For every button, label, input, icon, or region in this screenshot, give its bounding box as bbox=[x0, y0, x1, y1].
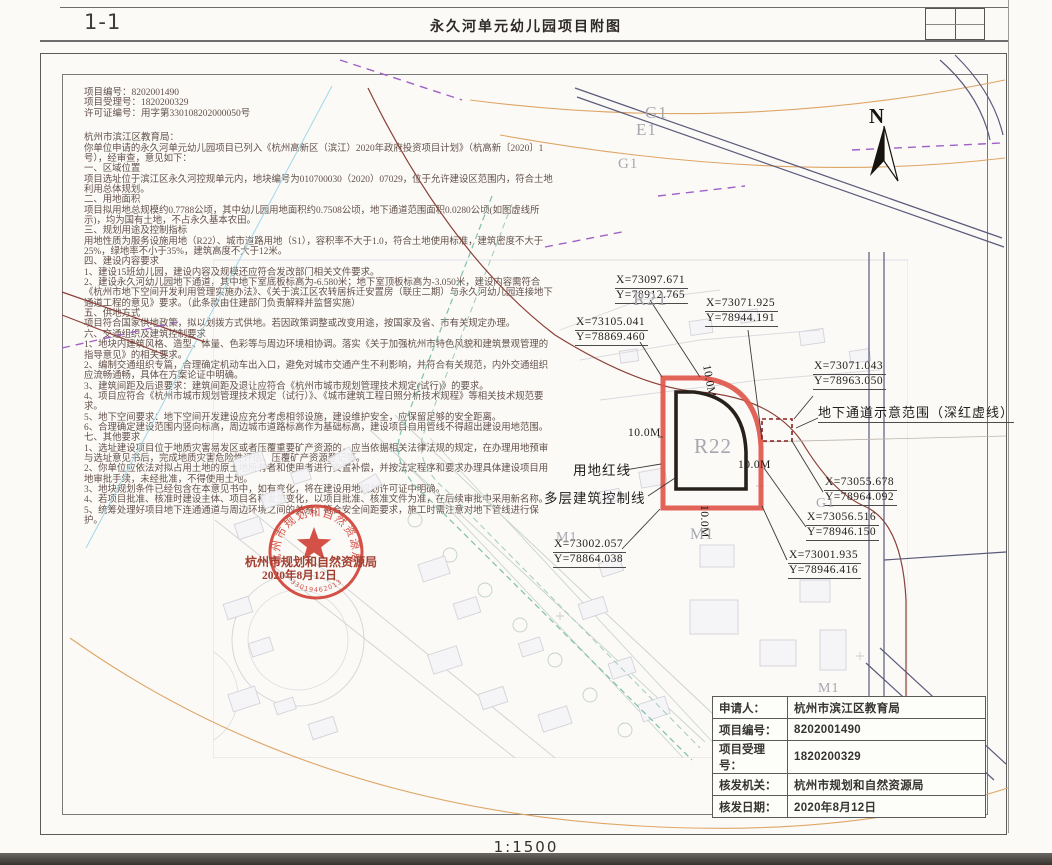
table-row: 核发机关：杭州市规划和自然资源局 bbox=[713, 774, 986, 796]
north-label: N bbox=[869, 104, 884, 129]
table-row: 项目编号：8202001490 bbox=[713, 719, 986, 741]
table-row: 核发日期：2020年8月12日 bbox=[713, 796, 986, 818]
zone-label-m1: M1 bbox=[556, 530, 577, 546]
header-bottom-rule bbox=[40, 40, 1008, 42]
coord-label: X=73105.041Y=78869.460 bbox=[575, 316, 648, 346]
zone-label-r22: R22 bbox=[694, 434, 732, 459]
dim-10m-left: 10.0M bbox=[628, 427, 661, 439]
zone-label-m1: M1 bbox=[690, 526, 714, 544]
table-row: 项目受理号：1820200329 bbox=[713, 741, 986, 774]
project-number-line: 项目编号：8202001490 bbox=[84, 88, 556, 98]
zone-label-m1: M1 bbox=[818, 681, 839, 697]
scan-edge-bar bbox=[0, 853, 1052, 865]
permit-number-line: 许可证编号：用字第330108202000050号 bbox=[84, 109, 556, 119]
acceptance-number-line: 项目受理号：1820200329 bbox=[84, 98, 556, 108]
coord-label: X=73071.043Y=78963.050 bbox=[813, 360, 886, 390]
coord-label: X=73001.935Y=78946.416 bbox=[788, 549, 861, 579]
revision-grid bbox=[925, 8, 985, 40]
coord-label: X=73071.925Y=78944.191 bbox=[705, 297, 778, 327]
planning-notice-text: 项目编号：8202001490 项目受理号：1820200329 许可证编号：用… bbox=[84, 88, 556, 526]
zone-label-r21: R21 bbox=[633, 289, 668, 311]
coord-label: X=73056.516Y=78946.150 bbox=[806, 511, 879, 541]
zone-label-e1: E1 bbox=[636, 120, 657, 140]
zone-label-g1: G1 bbox=[816, 496, 835, 512]
issuing-info-table: 申请人：杭州市滨江区教育局 项目编号：8202001490 项目受理号：1820… bbox=[712, 696, 986, 818]
sheet-title: 永久河单元幼儿园项目附图 bbox=[0, 16, 1052, 36]
stamp-date-text: 2020年8月12日 bbox=[262, 567, 337, 583]
zone-label-g1: G1 bbox=[618, 156, 638, 173]
scanned-planning-sheet: { "sheet": { "figure_no": "1-1", "title"… bbox=[0, 0, 1052, 865]
table-row: 申请人：杭州市滨江区教育局 bbox=[713, 697, 986, 719]
red-line-label: 用地红线 bbox=[573, 459, 631, 479]
header-top-rule bbox=[60, 7, 1008, 8]
underground-passage-label: 地下通道示意范围（深红虚线） bbox=[818, 402, 1014, 423]
notice-recipient: 杭州市滨江区教育局： bbox=[84, 133, 556, 143]
control-line-label: 多层建筑控制线 bbox=[544, 487, 646, 507]
dim-10m-right: 10.0M bbox=[738, 459, 771, 471]
notice-body: 你单位申请的永久河单元幼儿园项目已列入《杭州高新区（滨江）2020年政府投资项目… bbox=[84, 144, 556, 527]
